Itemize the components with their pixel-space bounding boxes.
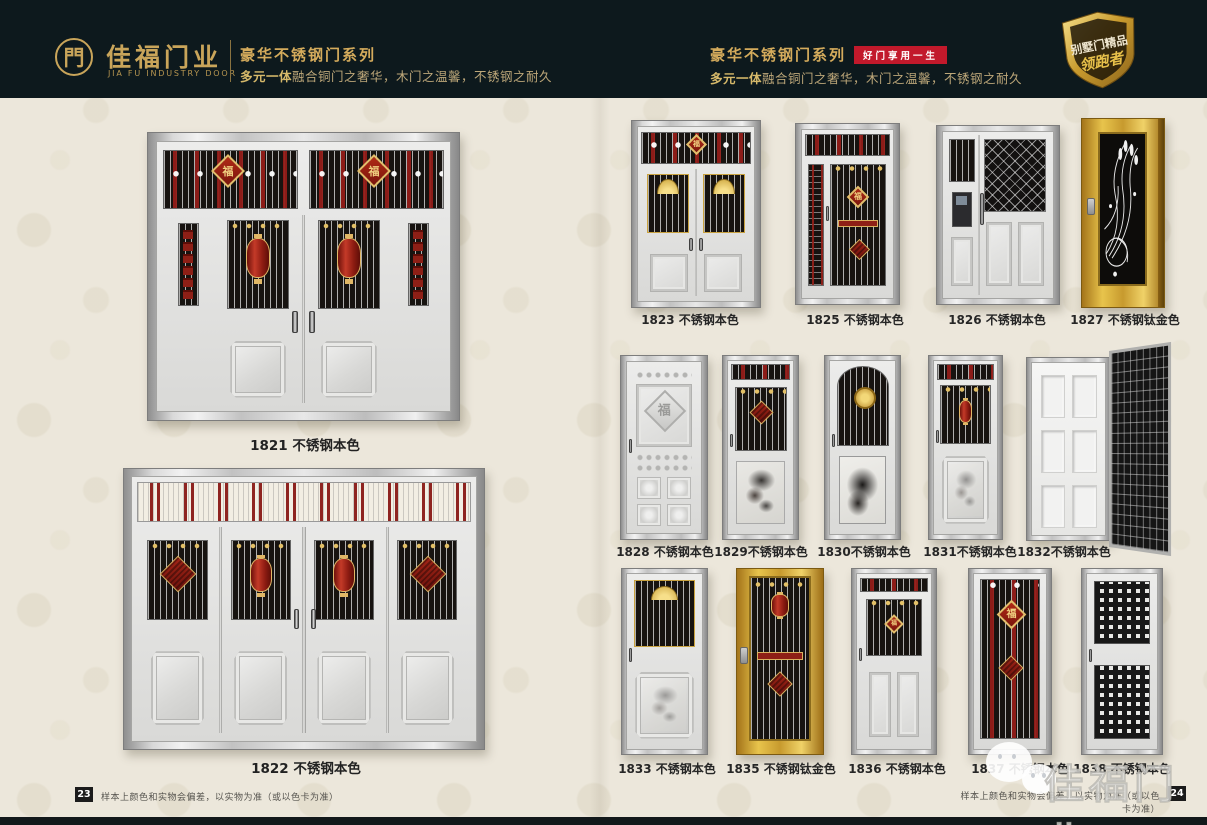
lattice-window (949, 139, 975, 182)
door-handle (980, 193, 984, 225)
door-1823: 福 (631, 120, 761, 308)
etched-scene (948, 464, 982, 515)
door-1825: 福 (795, 123, 900, 305)
door-1838 (1081, 568, 1163, 755)
door-handle (859, 648, 862, 661)
emboss-panel (951, 237, 973, 287)
leaf-window (749, 576, 811, 741)
gold-dots (751, 578, 809, 591)
red-band (838, 220, 879, 227)
knot-motif (159, 556, 196, 593)
door-panel (1072, 485, 1097, 528)
red-band (757, 652, 803, 660)
door-lock (740, 647, 748, 664)
swirl-panel (1098, 132, 1147, 286)
door-handle (832, 434, 835, 447)
emboss-panel (897, 672, 919, 737)
grille-ornament-dots (981, 580, 1039, 593)
subtitle-strong: 多元一体 (710, 71, 762, 86)
door-body (933, 360, 998, 535)
emboss-panel (635, 672, 694, 739)
premium-shield-badge: 别墅门精品 领跑者 (1055, 7, 1144, 93)
series-title-left: 豪华不锈钢门系列 (240, 44, 376, 65)
checker-window (1094, 665, 1150, 739)
fu-medallion: 福 (847, 185, 870, 208)
door-1836: 福 (851, 568, 937, 755)
lantern-motif (959, 400, 973, 423)
emboss-panel (317, 651, 370, 725)
gold-dots (736, 388, 786, 395)
door-body: 福 (637, 126, 755, 302)
emboss-panel (650, 254, 688, 292)
lantern-motif (250, 558, 272, 592)
fan-motif (713, 179, 734, 194)
door-handle (294, 609, 299, 629)
gold-dots (228, 221, 288, 231)
subtitle-rest: 融合铜门之奢华，木门之温馨，不锈钢之耐久 (762, 71, 1022, 86)
door-1829 (722, 355, 799, 540)
door-1826 (936, 125, 1060, 305)
leaf-window (634, 580, 696, 647)
gold-dots (831, 165, 885, 172)
knot-motif (848, 239, 869, 260)
door-1821: 福 福 (147, 132, 460, 421)
fan-motif (657, 179, 678, 194)
brand-title-en: JIA FU INDUSTRY DOOR (108, 69, 237, 78)
knot-motif (768, 671, 793, 696)
leaf-window (227, 220, 289, 309)
door-handle (309, 311, 315, 333)
door-1837: 福 (968, 568, 1052, 755)
gold-dots (319, 221, 379, 231)
door-handle (699, 238, 703, 251)
lantern-motif (333, 558, 355, 592)
brand-watermark: 佳福门业 (1044, 752, 1207, 825)
door-1833 (621, 568, 708, 755)
door-handle (311, 609, 316, 629)
page-gutter (590, 98, 610, 818)
emboss-panel (1018, 222, 1044, 287)
door-1828: 福 (620, 355, 708, 540)
tassel-motif (183, 230, 193, 298)
fu-medallion: 福 (885, 614, 905, 634)
gold-dots (148, 541, 206, 550)
door-body (626, 573, 703, 750)
door-label-1822: 1822 不锈钢本色 (196, 757, 416, 777)
motif-row (636, 465, 692, 472)
etched-scene (643, 680, 685, 731)
subtitle-strong: 多元一体 (240, 69, 292, 84)
door-handle (936, 430, 939, 443)
series-title-right: 豪华不锈钢门系列 (710, 44, 846, 65)
door-panel (1072, 430, 1097, 473)
emboss-panel (986, 222, 1012, 287)
emboss-panel (230, 341, 286, 397)
fu-medallion: 福 (996, 599, 1026, 629)
door-body (942, 131, 1054, 299)
door-body (1031, 362, 1106, 536)
quality-badge: 好门享用一生 (854, 46, 947, 64)
mullion (219, 527, 222, 733)
door-panel (1041, 430, 1066, 473)
motif-row (636, 454, 692, 461)
checker-window (1094, 581, 1150, 644)
screen-door (1109, 342, 1171, 556)
panel-door (1026, 357, 1111, 541)
leaf-window (647, 174, 689, 233)
arch-grille-window (837, 366, 889, 446)
knot-motif (998, 655, 1023, 680)
leaf-window (314, 540, 374, 619)
door-handle (292, 311, 298, 333)
knot-motif (409, 556, 446, 593)
gold-dots (867, 600, 921, 607)
door-edge (1158, 119, 1164, 307)
gold-dots (398, 541, 456, 550)
intercom-unit (952, 192, 972, 227)
door-body (829, 360, 896, 535)
tassel-motif (413, 230, 423, 298)
leaf-window (703, 174, 745, 233)
peacock-swirl-art (1100, 134, 1145, 284)
art-panel (736, 461, 785, 523)
transom-grille (731, 364, 791, 380)
catalog-spread: 門 佳福门业 JIA FU INDUSTRY DOOR 豪华不锈钢门系列 多元一… (0, 0, 1207, 825)
door-body (727, 360, 794, 535)
logo-symbol: 門 (64, 42, 85, 72)
door-handle (629, 439, 632, 453)
door-1832 (1026, 353, 1172, 545)
art-panel (839, 456, 886, 523)
bottom-strip (0, 817, 1207, 825)
side-window (408, 223, 430, 306)
mullion (386, 527, 389, 733)
door-1822 (123, 468, 485, 750)
leaf-window (397, 540, 457, 619)
emboss-panel (321, 341, 377, 397)
door-panel (1041, 375, 1066, 418)
emboss-panel (151, 651, 204, 725)
gold-dots (941, 386, 991, 393)
emboss-panel (704, 254, 742, 292)
subtitle-rest: 融合铜门之奢华，木门之温馨，不锈钢之耐久 (292, 69, 552, 84)
fan-motif (651, 586, 678, 600)
lantern-motif (246, 238, 270, 278)
mullion (302, 527, 305, 733)
door-1835 (736, 568, 824, 755)
knot-motif (749, 401, 773, 425)
leaf-window: 福 (980, 579, 1040, 738)
center-mullion (695, 169, 697, 296)
emboss-panel (869, 672, 891, 737)
door-handle (1089, 649, 1092, 662)
door-body: 福 (626, 361, 702, 534)
lantern-motif (337, 238, 361, 278)
side-window (178, 223, 200, 306)
header-divider (230, 40, 231, 82)
door-body: 福 (856, 573, 932, 750)
door-label-1823: 1823 不锈钢本色 (600, 311, 780, 328)
series-subtitle-left: 多元一体融合铜门之奢华，木门之温馨，不锈钢之耐久 (240, 66, 552, 85)
rosette-panel (637, 504, 661, 526)
leaf-window: 福 (830, 164, 886, 287)
emboss-panel (942, 456, 990, 523)
door-label-1827: 1827 不锈钢钛金色 (1035, 311, 1207, 328)
gold-dots (232, 541, 290, 550)
door-1830 (824, 355, 901, 540)
logo-door-glyph: 門 (55, 38, 93, 76)
door-body (1086, 573, 1158, 750)
transom-grille (937, 364, 995, 380)
series-subtitle-right: 多元一体融合铜门之奢华，木门之温馨，不锈钢之耐久 (710, 68, 1022, 87)
leaf-window (940, 385, 992, 444)
door-body: 福 福 (156, 141, 451, 412)
leaf-window (147, 540, 207, 619)
rosette-panel (637, 477, 661, 499)
rosette-panel (667, 477, 691, 499)
emboss-panel (234, 651, 287, 725)
footer-note-left: 样本上颜色和实物会偏差，以实物为准（或以色卡为准） (101, 790, 339, 803)
stripe-panel (808, 164, 823, 287)
motif-row (636, 371, 692, 380)
door-body: 福 (801, 129, 894, 299)
door-body: 福 (973, 573, 1047, 750)
lantern-motif (771, 594, 788, 616)
leaf-window (231, 540, 291, 619)
center-mullion (302, 215, 306, 403)
transom-grille (860, 578, 928, 592)
door-handle (689, 238, 693, 251)
gold-dots (315, 541, 373, 550)
door-label-1821: 1821 不锈钢本色 (195, 434, 415, 454)
door-panel (1072, 375, 1097, 418)
transom-grille (805, 134, 891, 156)
gold-emblem (854, 387, 876, 409)
page-number-left: 23 (75, 787, 93, 802)
door-1827 (1081, 118, 1165, 308)
door-panel (1041, 485, 1066, 528)
door-1831 (928, 355, 1003, 540)
door-handle (730, 434, 733, 447)
leaf-window (735, 387, 787, 451)
leaf-window (318, 220, 380, 309)
transom-grille (137, 482, 471, 522)
emboss-panel (401, 651, 454, 725)
lattice-window (984, 139, 1047, 212)
door-handle (826, 206, 829, 221)
door-label-1832: 1832不锈钢本色 (974, 543, 1154, 560)
door-lock (1087, 198, 1095, 215)
door-handle (629, 648, 632, 662)
leaf-window: 福 (866, 599, 922, 657)
rosette-panel (667, 504, 691, 526)
door-body (131, 476, 477, 742)
header-bar: 門 佳福门业 JIA FU INDUSTRY DOOR 豪华不锈钢门系列 多元一… (0, 0, 1207, 98)
